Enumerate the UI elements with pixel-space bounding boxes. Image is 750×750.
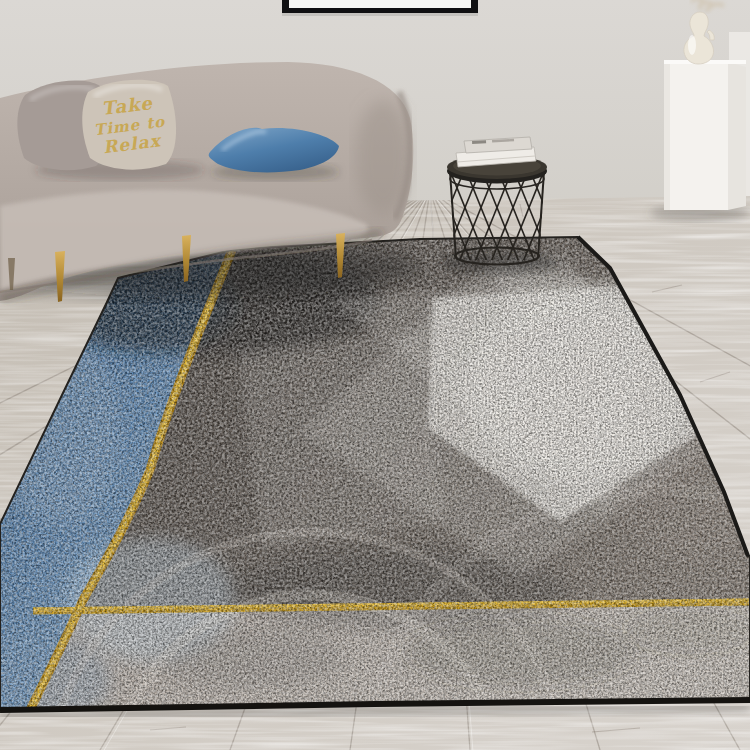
artwork-frame xyxy=(282,0,478,16)
scene-canvas: Take Time to Relax xyxy=(0,0,750,750)
living-room-photo: Take Time to Relax xyxy=(0,0,750,750)
pedestal xyxy=(664,60,746,210)
pedestal-front xyxy=(664,62,728,210)
pedestal-side xyxy=(728,62,746,210)
